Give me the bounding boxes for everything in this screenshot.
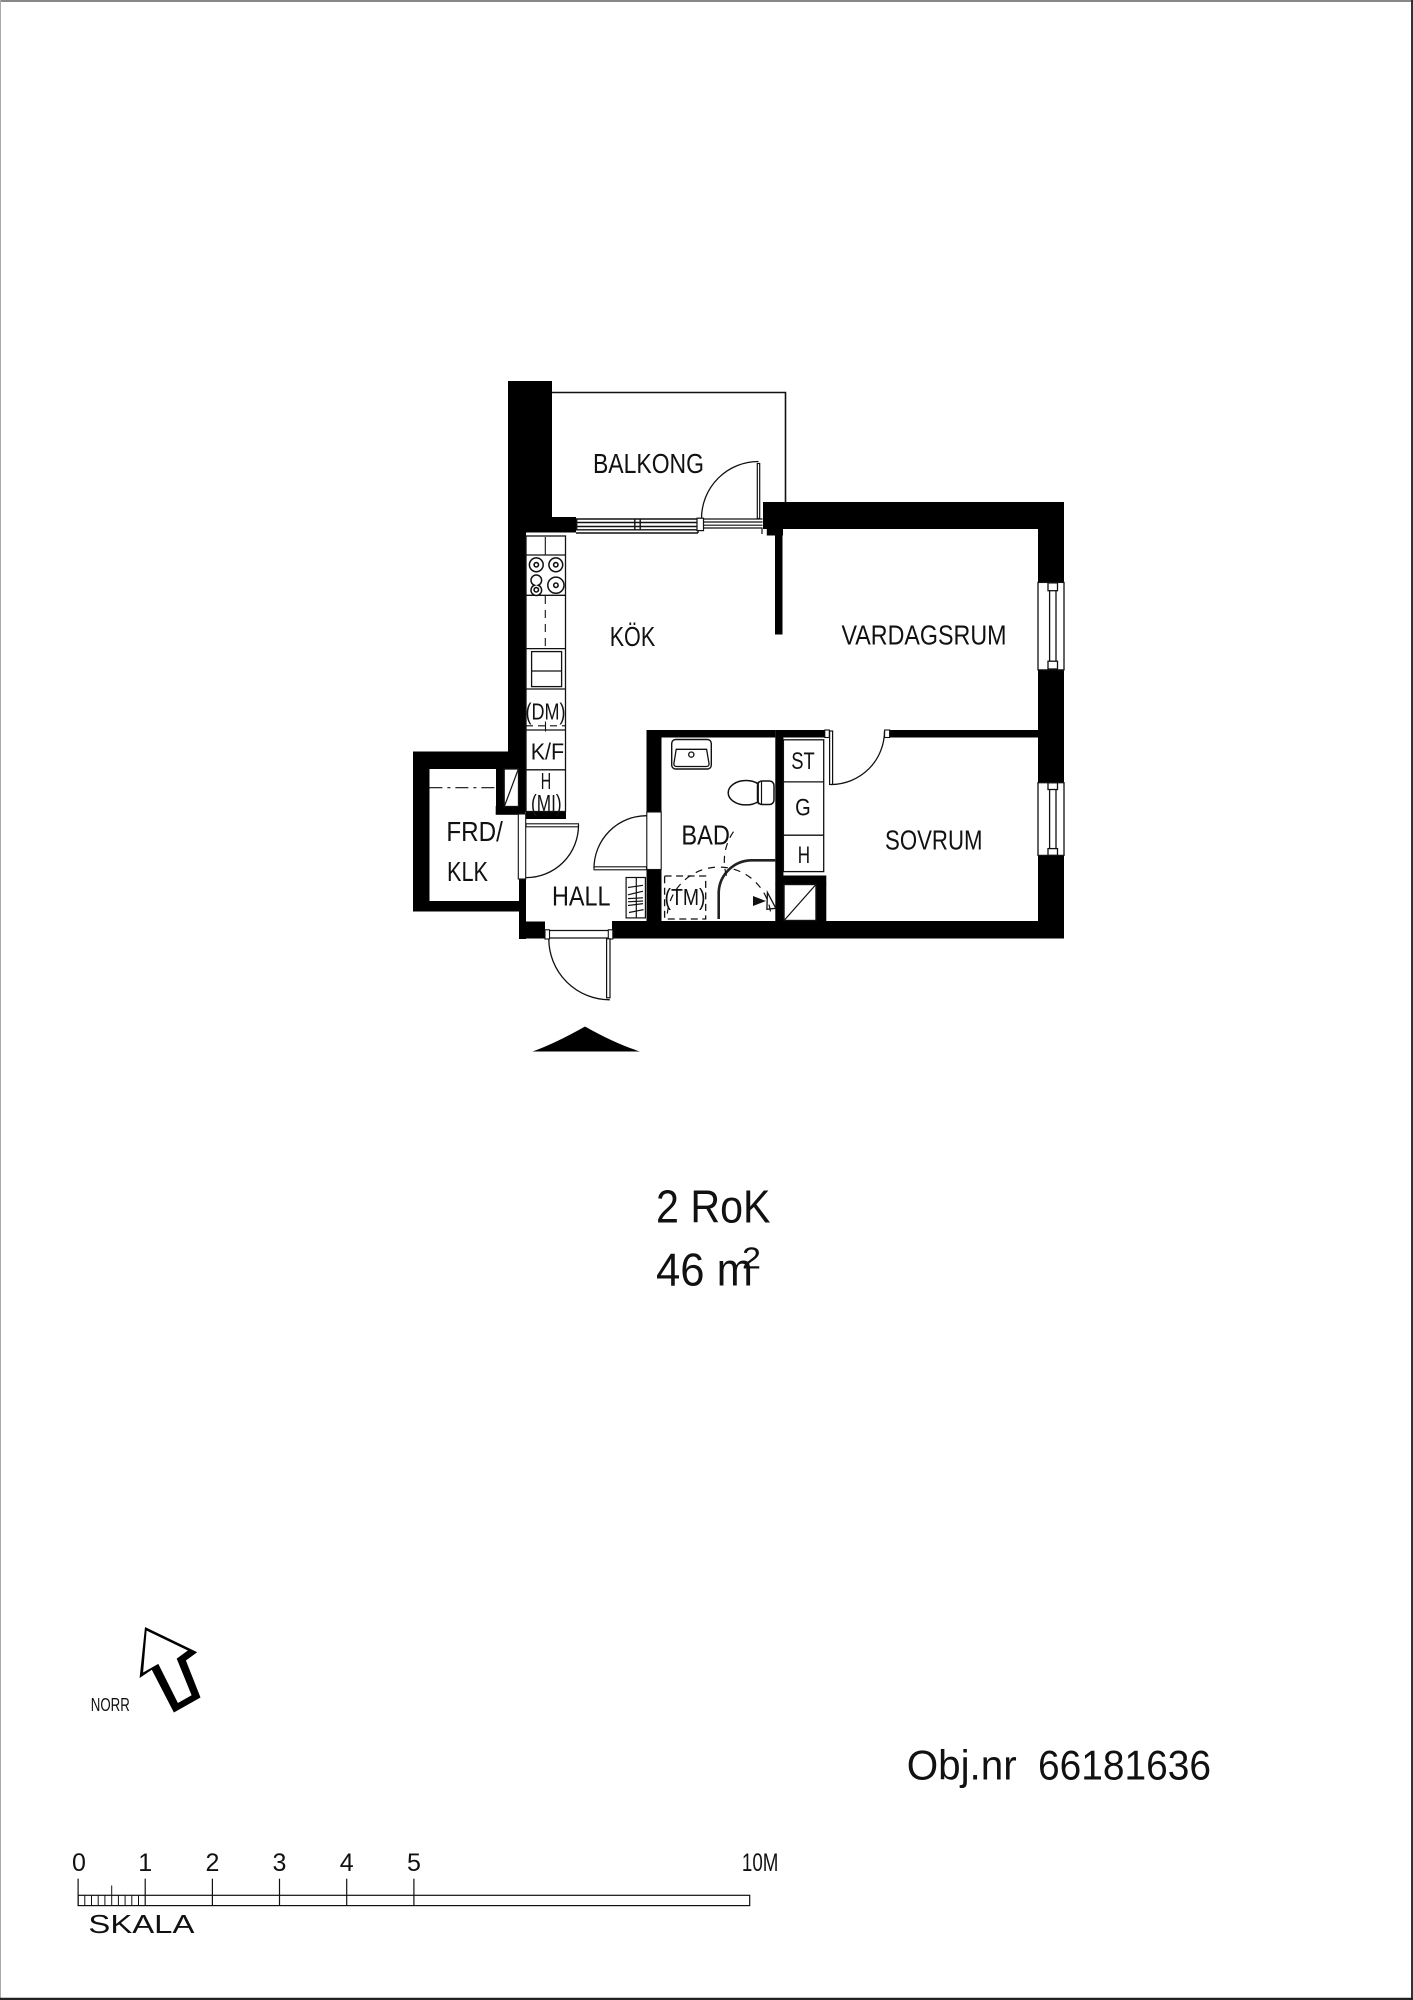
svg-text:KLK: KLK xyxy=(447,856,489,887)
svg-text:5: 5 xyxy=(407,1849,421,1877)
svg-text:3: 3 xyxy=(273,1849,287,1877)
svg-text:4: 4 xyxy=(340,1849,354,1877)
svg-text:K/F: K/F xyxy=(531,739,565,765)
svg-text:BALKONG: BALKONG xyxy=(593,448,704,479)
svg-text:(MI): (MI) xyxy=(531,790,562,816)
svg-text:HALL: HALL xyxy=(552,881,611,912)
svg-text:(TM): (TM) xyxy=(665,884,706,910)
svg-text:SKALA: SKALA xyxy=(88,1909,195,1939)
svg-text:KÖK: KÖK xyxy=(610,621,656,652)
svg-text:2: 2 xyxy=(205,1849,219,1877)
svg-text:FRD/: FRD/ xyxy=(446,816,503,847)
svg-text:46 m: 46 m xyxy=(656,1243,753,1295)
svg-text:BAD: BAD xyxy=(681,820,730,851)
svg-text:66181636: 66181636 xyxy=(1038,1742,1211,1789)
svg-text:(DM): (DM) xyxy=(526,699,566,725)
svg-text:0: 0 xyxy=(72,1849,86,1877)
svg-text:NORR: NORR xyxy=(91,1694,130,1715)
svg-text:1: 1 xyxy=(138,1849,152,1877)
svg-text:2: 2 xyxy=(742,1241,761,1276)
svg-text:G: G xyxy=(795,795,811,822)
svg-text:ST: ST xyxy=(791,748,815,775)
svg-text:VARDAGSRUM: VARDAGSRUM xyxy=(842,620,1007,651)
svg-text:10M: 10M xyxy=(742,1849,779,1877)
svg-text:SOVRUM: SOVRUM xyxy=(885,825,983,856)
svg-text:2 RoK: 2 RoK xyxy=(656,1180,771,1232)
svg-text:Obj.nr: Obj.nr xyxy=(907,1742,1017,1789)
svg-text:H: H xyxy=(798,842,810,869)
